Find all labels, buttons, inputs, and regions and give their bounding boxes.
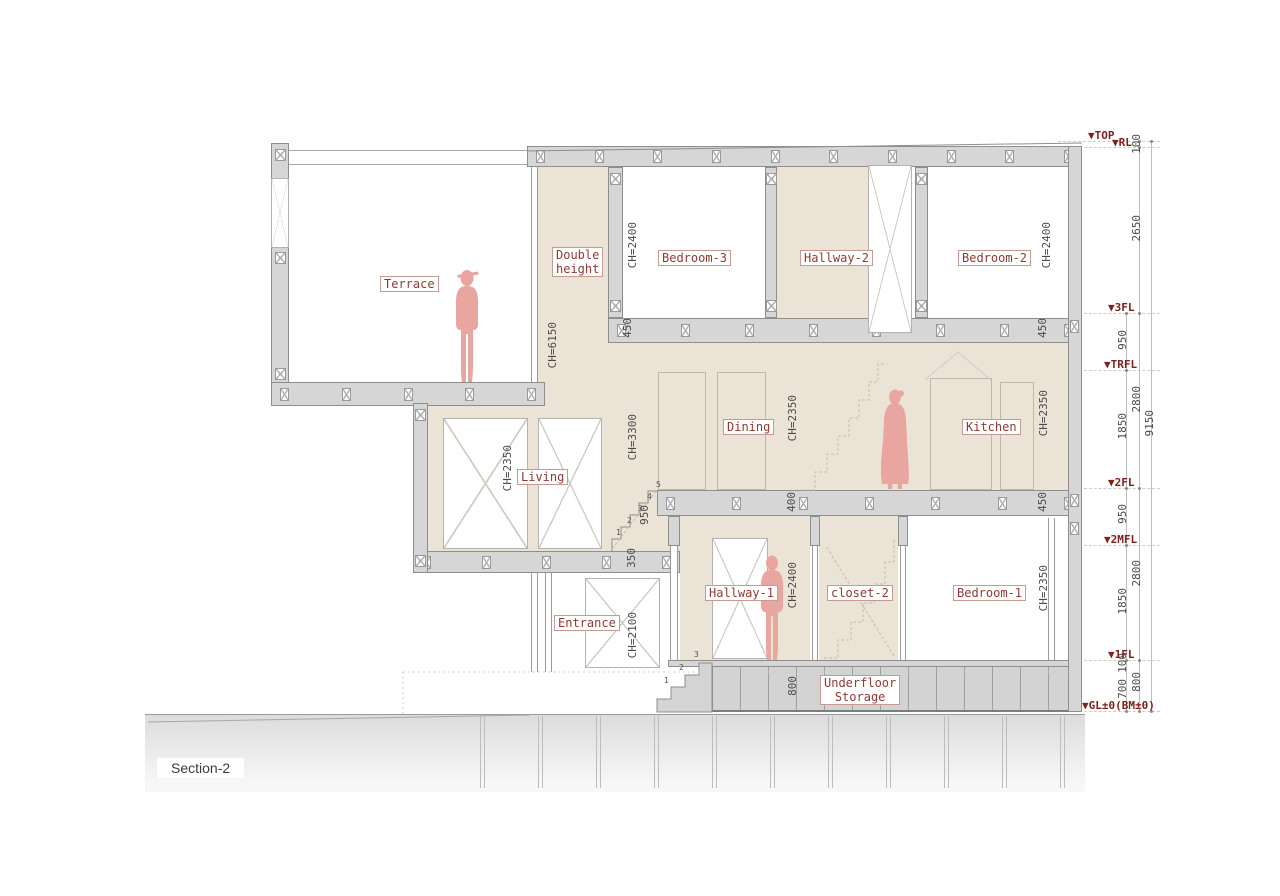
insulation-mark: [732, 497, 741, 510]
label-terrace: Terrace: [380, 276, 439, 292]
ch-double-height: CH=6150: [546, 322, 559, 368]
foundation-pile: [480, 716, 485, 788]
foundation-pile: [944, 716, 949, 788]
insulation-mark: [415, 555, 426, 567]
terrace-wall-window: [271, 178, 289, 248]
level-marker-label: 2FL: [1115, 476, 1135, 489]
dim-3fl-right: 450: [1036, 318, 1049, 338]
bedroom3-left-wall: [608, 167, 623, 318]
terrace-roof-edge: [272, 150, 535, 165]
level-marker-label: RL: [1119, 136, 1132, 149]
entrance-step-number: 3: [694, 651, 699, 659]
section-title: Section-2: [157, 758, 244, 778]
foundation-pile: [828, 716, 833, 788]
level-marker-gl: ▼GL±0(BM±0): [1082, 699, 1155, 712]
dining-cupboard-1: [658, 372, 706, 490]
insulation-mark: [745, 324, 754, 337]
label-underfloor-line2: Storage: [824, 690, 896, 704]
stair-number: 1: [616, 529, 621, 537]
insulation-mark: [916, 300, 927, 312]
dim-tick: [1150, 140, 1153, 143]
label-double-height: Double height: [552, 247, 603, 277]
insulation-mark: [1005, 150, 1014, 163]
stair-number: 3: [638, 505, 643, 513]
stair-number: 4: [647, 493, 652, 501]
label-double-height-line2: height: [556, 262, 599, 276]
second-floor-slab: [657, 490, 1082, 516]
insulation-mark: [1000, 324, 1009, 337]
level-marker-label: 3FL: [1115, 301, 1135, 314]
ch-bedroom2: CH=2400: [1040, 222, 1053, 268]
level-marker-trfl: ▼TRFL: [1104, 358, 1137, 371]
level-marker-2mfl: ▼2MFL: [1104, 533, 1137, 546]
insulation-mark: [1070, 320, 1079, 333]
dim-3fl-trfl: 950: [1116, 330, 1129, 350]
terrace-parapet: [271, 143, 289, 180]
ch-kitchen: CH=2350: [1037, 390, 1050, 436]
level-marker-3fl: ▼3FL: [1108, 301, 1135, 314]
label-entrance: Entrance: [554, 615, 620, 631]
insulation-mark: [275, 252, 286, 264]
insulation-mark: [275, 368, 286, 380]
dim-floor-gl: 700: [1116, 679, 1129, 699]
insulation-mark: [998, 497, 1007, 510]
label-living: Living: [517, 469, 568, 485]
dim-2fl-mid: 400: [785, 492, 798, 512]
hallway1-closet2-wall-cap: [810, 516, 820, 546]
level-marker-top: ▼TOP: [1088, 129, 1115, 142]
stair-number: 2: [627, 517, 632, 525]
living-window-1: [443, 418, 528, 549]
entrance-steps: [657, 663, 712, 712]
insulation-mark: [404, 388, 413, 401]
label-dining: Dining: [723, 419, 774, 435]
label-hallway1: Hallway-1: [705, 585, 778, 601]
stairwell-panel: [868, 165, 912, 333]
terrace-floor-slab: [271, 382, 545, 406]
dim-1fl-gl: 800: [1130, 672, 1143, 692]
label-bedroom1: Bedroom-1: [953, 585, 1026, 601]
dim-tick: [1138, 312, 1141, 315]
dim-2mfl-1fl: 1850: [1116, 588, 1129, 615]
ch-bedroom1: CH=2350: [1037, 565, 1050, 611]
label-double-height-line1: Double: [556, 248, 599, 262]
mid-floor-slab: [413, 551, 680, 573]
insulation-mark: [342, 388, 351, 401]
label-bedroom3: Bedroom-3: [658, 250, 731, 266]
dim-total-height: 9150: [1143, 410, 1156, 437]
entrance-door-frame: [545, 573, 552, 672]
foundation-pile: [1060, 716, 1065, 788]
dim-2fl-1fl: 2800: [1130, 560, 1143, 587]
foundation-pile: [654, 716, 659, 788]
foundation-pile: [538, 716, 543, 788]
entrance-step-number: 1: [664, 677, 669, 685]
insulation-mark: [415, 409, 426, 421]
level-marker-label: TRFL: [1111, 358, 1138, 371]
foundation-pile: [712, 716, 717, 788]
right-exterior-wall: [1068, 146, 1082, 712]
person-hallway: [755, 554, 789, 662]
insulation-mark: [829, 150, 838, 163]
insulation-mark: [888, 150, 897, 163]
insulation-mark: [809, 324, 818, 337]
insulation-mark: [610, 173, 621, 185]
insulation-mark: [610, 300, 621, 312]
label-underfloor-storage: Underfloor Storage: [820, 675, 900, 705]
level-marker-2fl: ▼2FL: [1108, 476, 1135, 489]
insulation-mark: [799, 497, 808, 510]
level-triangle-icon: ▼: [1108, 648, 1115, 661]
closet2-bedroom1-wall: [900, 546, 906, 660]
living-left-wall: [413, 403, 428, 573]
level-marker-1fl: ▼1FL: [1108, 648, 1135, 661]
person-kitchen: [875, 388, 915, 490]
level-marker-label: 1FL: [1115, 648, 1135, 661]
insulation-mark: [931, 497, 940, 510]
insulation-mark: [916, 173, 927, 185]
level-triangle-icon: ▼: [1104, 358, 1111, 371]
dim-3fl-left: 450: [621, 318, 634, 338]
dim-3fl-2fl: 2800: [1130, 386, 1143, 413]
insulation-mark: [275, 149, 286, 161]
insulation-mark: [280, 388, 289, 401]
dim-rl-3fl: 2650: [1130, 215, 1143, 242]
label-hallway2: Hallway-2: [800, 250, 873, 266]
ch-bedroom3: CH=2400: [626, 222, 639, 268]
roof-slab: [527, 146, 1082, 167]
entrance-hallway1-wall: [670, 546, 678, 660]
ch-living: CH=2350: [501, 445, 514, 491]
label-kitchen: Kitchen: [962, 419, 1021, 435]
third-floor-slab: [608, 318, 1082, 343]
level-marker-label: GL±0(BM±0): [1089, 699, 1155, 712]
ch-dining: CH=2350: [786, 395, 799, 441]
insulation-mark: [947, 150, 956, 163]
hallway2-space: [777, 167, 868, 318]
insulation-mark: [766, 173, 777, 185]
insulation-mark: [865, 497, 874, 510]
level-triangle-icon: ▼: [1108, 301, 1115, 314]
entrance-hallway1-wall-cap: [668, 516, 680, 546]
dim-2fl-2mfl: 950: [1116, 504, 1129, 524]
entrance-step-number: 2: [679, 664, 684, 672]
insulation-mark: [527, 388, 536, 401]
dim-underfloor: 800: [786, 676, 799, 696]
foundation-pile: [1002, 716, 1007, 788]
kitchen-unit-2: [1000, 382, 1034, 490]
insulation-mark: [482, 556, 491, 569]
insulation-mark: [1070, 494, 1079, 507]
level-triangle-icon: ▼: [1108, 476, 1115, 489]
bedroom3-hallway2-wall: [765, 167, 777, 318]
level-triangle-icon: ▼: [1104, 533, 1111, 546]
insulation-mark: [653, 150, 662, 163]
terrace-glazing: [531, 167, 538, 382]
dim-trfl-2fl: 1850: [1116, 413, 1129, 440]
insulation-mark: [766, 300, 777, 312]
insulation-mark: [936, 324, 945, 337]
level-triangle-icon: ▼: [1082, 699, 1089, 712]
level-triangle-icon: ▼: [1088, 129, 1095, 142]
insulation-mark: [602, 556, 611, 569]
closet2-bedroom1-wall-cap: [898, 516, 908, 546]
person-terrace: [450, 268, 484, 384]
dim-tick: [1138, 487, 1141, 490]
dim-2fl-right: 450: [1036, 492, 1049, 512]
foundation-pile: [886, 716, 891, 788]
ch-entrance: CH=2100: [626, 612, 639, 658]
insulation-mark: [465, 388, 474, 401]
insulation-mark: [771, 150, 780, 163]
insulation-mark: [712, 150, 721, 163]
insulation-mark: [536, 150, 545, 163]
level-marker-rl: ▼RL: [1112, 136, 1132, 149]
stair-number: 5: [656, 481, 661, 489]
label-underfloor-line1: Underfloor: [824, 676, 896, 690]
label-bedroom2: Bedroom-2: [958, 250, 1031, 266]
insulation-mark: [666, 497, 675, 510]
insulation-mark: [542, 556, 551, 569]
ch-hallway1: CH=2400: [786, 562, 799, 608]
label-closet2: closet-2: [827, 585, 893, 601]
foundation-pile: [596, 716, 601, 788]
terrace-left-wall: [271, 246, 289, 386]
hallway2-bedroom2-wall: [915, 167, 928, 318]
section-drawing: Terrace Double height Bedroom-3 Hallway-…: [0, 0, 1280, 896]
foundation-pile: [770, 716, 775, 788]
insulation-mark: [681, 324, 690, 337]
dim-tick: [1138, 659, 1141, 662]
ch-stair-hall: CH=3300: [626, 414, 639, 460]
dim-mid-floor: 350: [625, 548, 638, 568]
entrance-glazing: [531, 573, 538, 672]
level-triangle-icon: ▼: [1112, 136, 1119, 149]
insulation-mark: [1070, 522, 1079, 535]
level-marker-label: 2MFL: [1111, 533, 1138, 546]
hallway1-closet2-wall: [812, 546, 818, 660]
insulation-mark: [595, 150, 604, 163]
